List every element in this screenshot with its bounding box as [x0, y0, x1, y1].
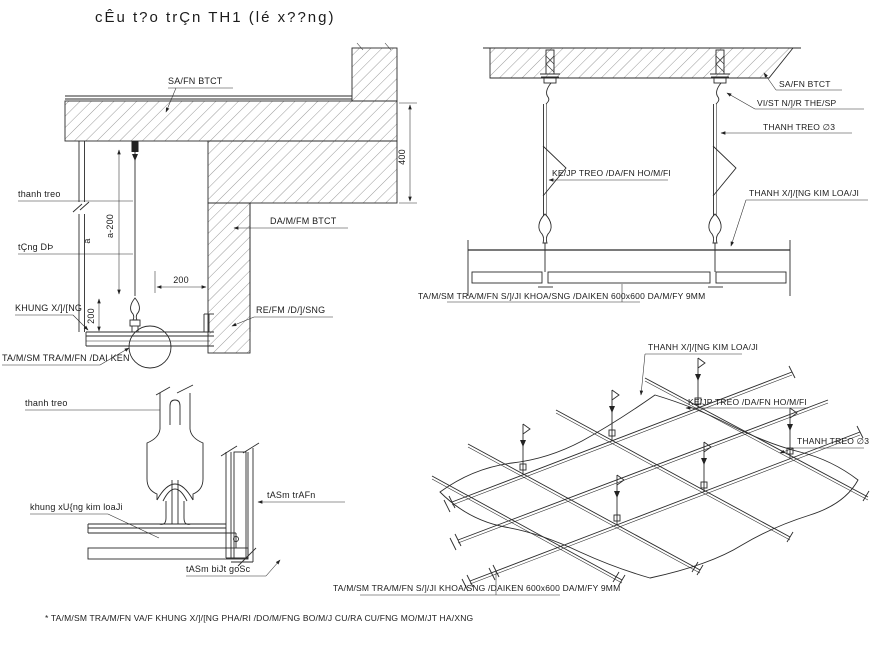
label-runner: THANH X/]/[NG KIM LOA/JI	[749, 188, 859, 198]
dim-spacing-a: a	[82, 238, 92, 243]
label-frame: KHUNG X/]/[NG	[15, 303, 82, 313]
ceiling-panel	[548, 272, 710, 283]
general-note: * TA/M/SM TRA/M/FN VA/F KHUNG X/]/[NG PH…	[45, 613, 473, 623]
suspension-bracket	[147, 385, 203, 524]
corner-detail: thanh treo	[25, 385, 345, 576]
label-level: tÇng DÞ	[18, 242, 53, 252]
label-slab: SA/FN BTCT	[168, 76, 223, 86]
label-panel: TA/M/SM TRA/M/FN /DAI KEN	[2, 353, 130, 363]
concrete-slab	[490, 48, 793, 78]
dim-offset-h: 200	[173, 275, 189, 285]
hanger-wire	[130, 141, 140, 332]
wall-panel	[221, 443, 259, 562]
label-clip: KE/JP TREO /DA/FN HO/M/FI	[688, 397, 807, 407]
label-hanger: thanh treo	[25, 398, 68, 408]
label-rod: THANH TREO ∅3	[763, 122, 835, 132]
label-hanger: thanh treo	[18, 189, 61, 199]
label-slab: SA/FN BTCT	[779, 79, 831, 89]
ceiling-panel	[472, 272, 542, 283]
section-detail: 400 a-200 a 200 200 SA/FN BTCT thanh tre…	[2, 43, 417, 368]
label-panel: TA/M/SM TRA/M/FN S/]/JI KHOA/SNG /DAIKEN…	[333, 583, 620, 593]
label-panel: tASm trAFn	[267, 490, 316, 500]
label-panel: TA/M/SM TRA/M/FN S/]/JI KHOA/SNG /DAIKEN…	[418, 291, 705, 301]
label-rod: THANH TREO ∅3	[797, 436, 869, 446]
label-clip: KE/JP TREO /DA/FN HO/M/FI	[552, 168, 671, 178]
label-beam: DA/M/FM BTCT	[270, 216, 337, 226]
ceiling-panel	[88, 548, 248, 559]
dim-beam-depth: 400	[397, 149, 407, 165]
ceiling-panel	[716, 272, 786, 283]
ceiling-slab	[440, 395, 858, 578]
page-title: cÊu t?o trÇn TH1 (lé x??ng)	[95, 9, 335, 26]
drawing-sheet: cÊu t?o trÇn TH1 (lé x??ng)	[0, 0, 870, 647]
elevation-labels: SA/FN BTCT VI/ST N/]/R THE/SP THANH TREO…	[418, 73, 868, 302]
cad-drawing-svg: cÊu t?o trÇn TH1 (lé x??ng)	[0, 0, 870, 647]
label-runner: THANH X/]/[NG KIM LOA/JI	[648, 342, 758, 352]
ceiling-grid	[468, 240, 790, 296]
dim-wire-length: a-200	[105, 214, 115, 238]
label-edge: RE/FM /D/]/SNG	[256, 305, 325, 315]
label-anchor: VI/ST N/]/R THE/SP	[757, 98, 836, 108]
label-corner: tASm biJt goSc	[186, 564, 251, 574]
concrete-slab	[65, 43, 397, 353]
dim-offset-v: 200	[86, 308, 96, 324]
elevation-detail: SA/FN BTCT VI/ST N/]/R THE/SP THANH TREO…	[418, 48, 868, 302]
isometric-view: THANH X/]/[NG KIM LOA/JI KE/JP TREO /DA/…	[333, 342, 869, 595]
label-frame: khung xU{ng kim loaJi	[30, 502, 123, 512]
